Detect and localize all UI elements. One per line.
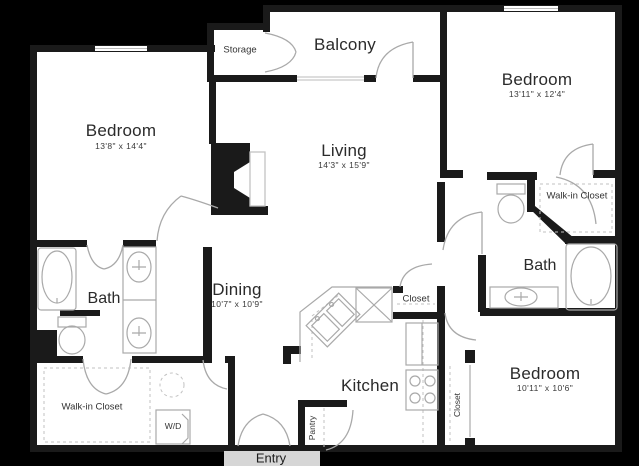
wall [393,286,403,293]
room-label-bath-right: Bath [524,257,557,275]
window-bedroom-top-right [504,6,558,11]
room-label-pantry: Pantry [308,416,318,441]
room-label-closet-hall: Closet [403,295,430,306]
room-label-entry: Entry [256,452,286,466]
room-label-walkin-right: Walk-in Closet [546,192,608,203]
wall [132,356,203,363]
wall [207,23,269,30]
wall [298,400,347,407]
window-balcony-rail [297,75,364,82]
room-dims-bedroom-bottom-right: 10'11" x 10'6" [517,384,573,394]
wall [478,255,486,312]
wall [480,308,622,316]
wall [30,445,622,452]
fireplace-icon [211,143,265,215]
wall [207,75,297,82]
room-label-kitchen: Kitchen [341,376,399,396]
wall [440,5,447,172]
wall [465,438,475,450]
wall [615,5,622,452]
wall [37,356,83,363]
wall [298,400,305,452]
wall [283,346,291,364]
room-dims-dining: 10'7" x 10'9" [211,300,263,310]
wall [207,23,214,82]
room-dims-bedroom-top-right: 13'11" x 12'4" [509,90,565,100]
floorplan: Bedroom 13'8" x 14'4" Storage Balcony Be… [0,0,639,466]
room-label-balcony: Balcony [314,35,376,55]
wall [60,310,100,316]
wall [565,236,622,244]
room-label-bedroom-bottom-right: Bedroom [510,364,580,384]
window-bedroom-left [95,46,147,51]
wall [228,356,235,452]
room-label-living: Living [321,141,367,161]
wall [437,182,445,242]
wall-block [31,330,57,357]
room-dims-living: 14'3" x 15'9" [318,161,370,171]
room-label-storage: Storage [223,46,256,57]
room-label-bedroom-left: Bedroom [86,121,156,141]
wall [263,5,447,12]
room-label-bedroom-top-right: Bedroom [502,70,572,90]
wall [437,286,445,452]
wall [123,240,156,247]
room-label-dining: Dining [212,280,261,300]
room-label-bath-left: Bath [88,290,121,308]
room-label-closet-bedroom: Closet [453,393,463,417]
wall [465,350,475,363]
room-label-walkin-left: Walk-in Closet [61,403,123,414]
wall [440,170,463,178]
room-dims-bedroom-left: 13'8" x 14'4" [95,142,147,152]
wall [209,82,216,144]
wall [30,240,87,247]
wall [30,45,37,452]
wall [393,312,441,319]
wall [593,170,622,178]
washer-dryer-label: W/D [165,422,182,432]
wall [364,75,376,82]
